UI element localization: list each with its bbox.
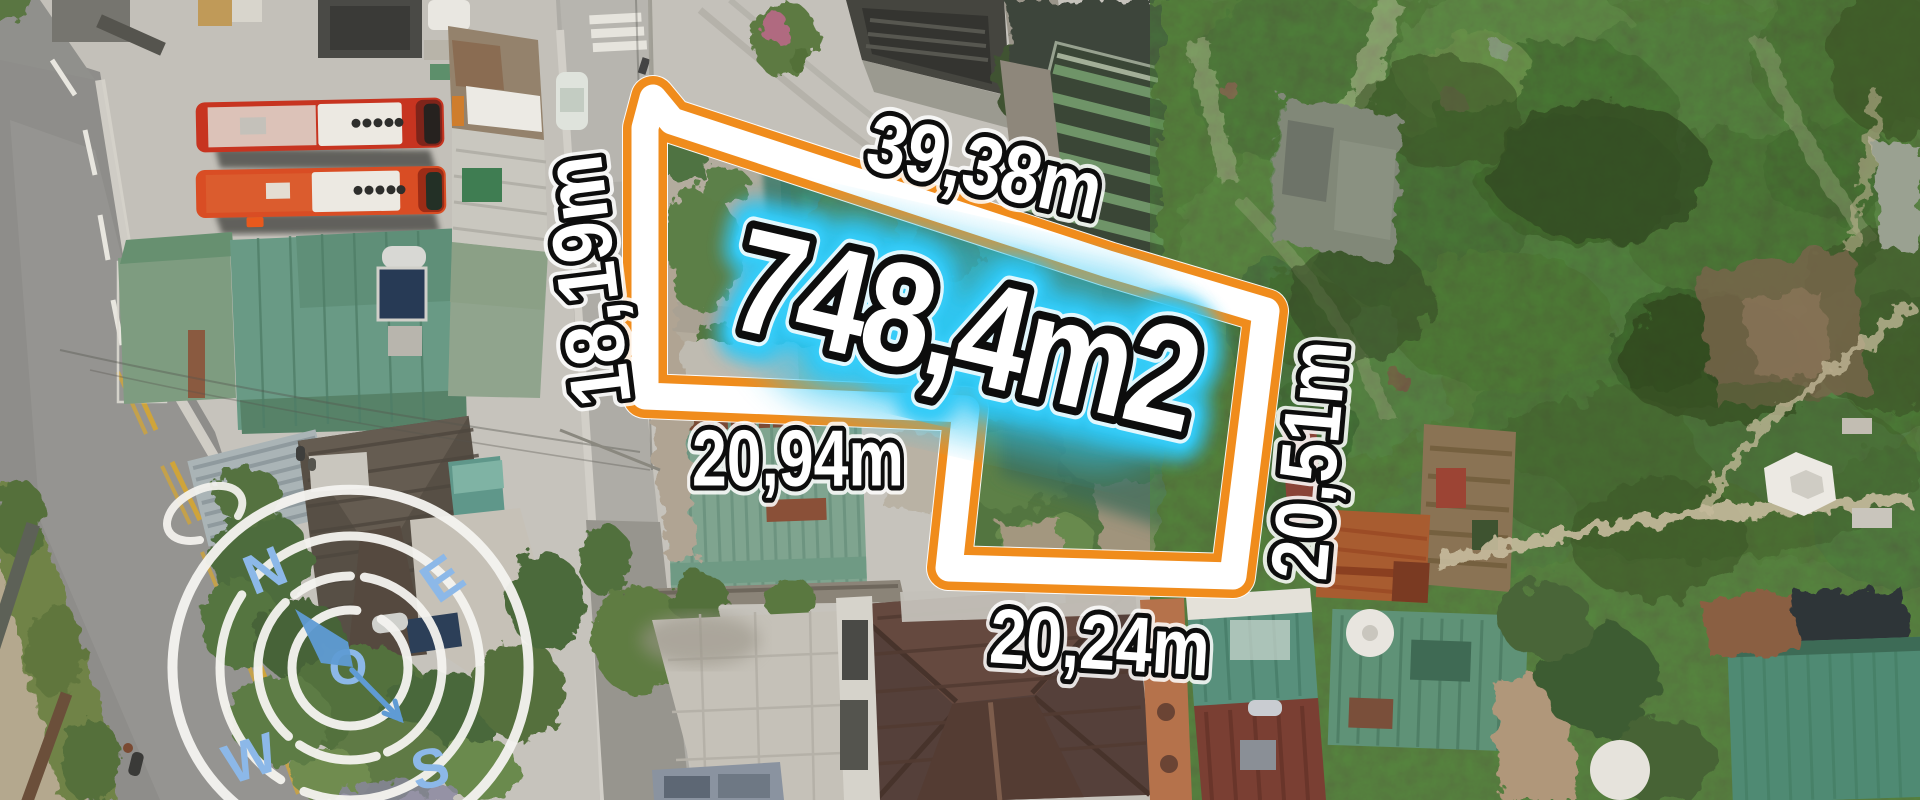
svg-text:20,94m: 20,94m bbox=[692, 414, 904, 503]
svg-text:20,24m: 20,24m bbox=[988, 591, 1213, 692]
